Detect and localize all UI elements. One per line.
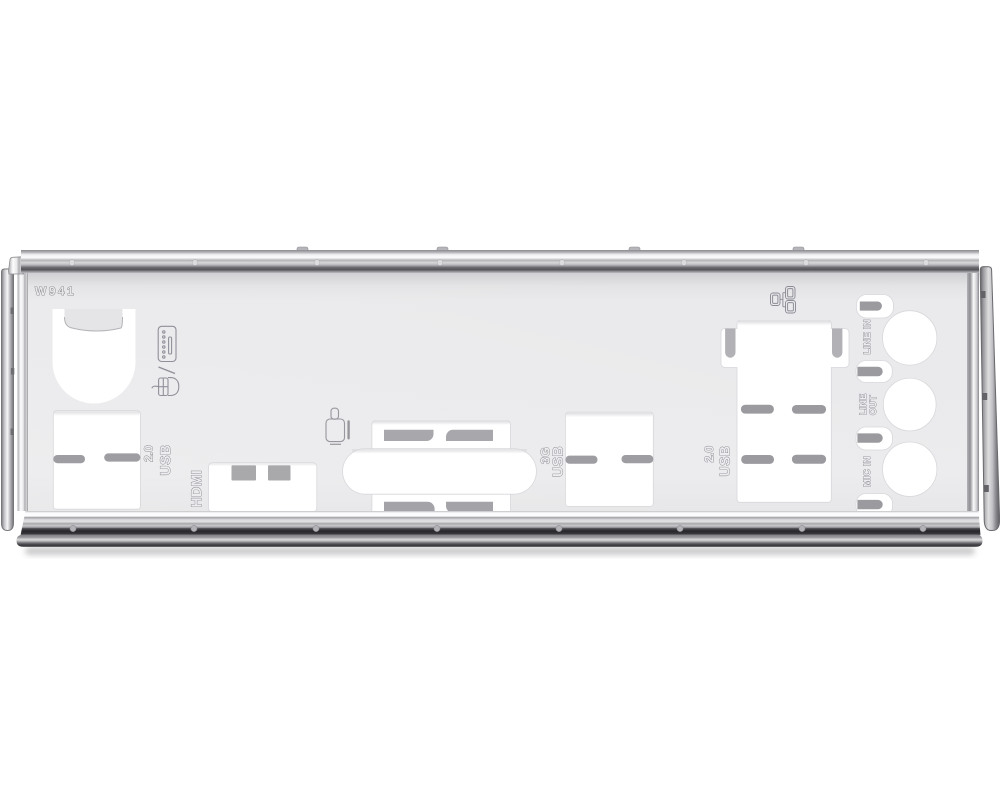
svg-text:USB: USB (550, 446, 566, 477)
svg-text:OUT: OUT (868, 395, 879, 415)
svg-text:HDMI: HDMI (188, 470, 204, 508)
svg-text:2.0: 2.0 (702, 445, 716, 462)
svg-text:MIC IN: MIC IN (862, 456, 873, 487)
svg-text:USB: USB (717, 445, 733, 476)
svg-text:W941: W941 (35, 284, 76, 298)
svg-text:USB: USB (157, 444, 173, 475)
svg-text:2.0: 2.0 (142, 445, 156, 462)
svg-text:LINE IN: LINE IN (862, 319, 873, 354)
